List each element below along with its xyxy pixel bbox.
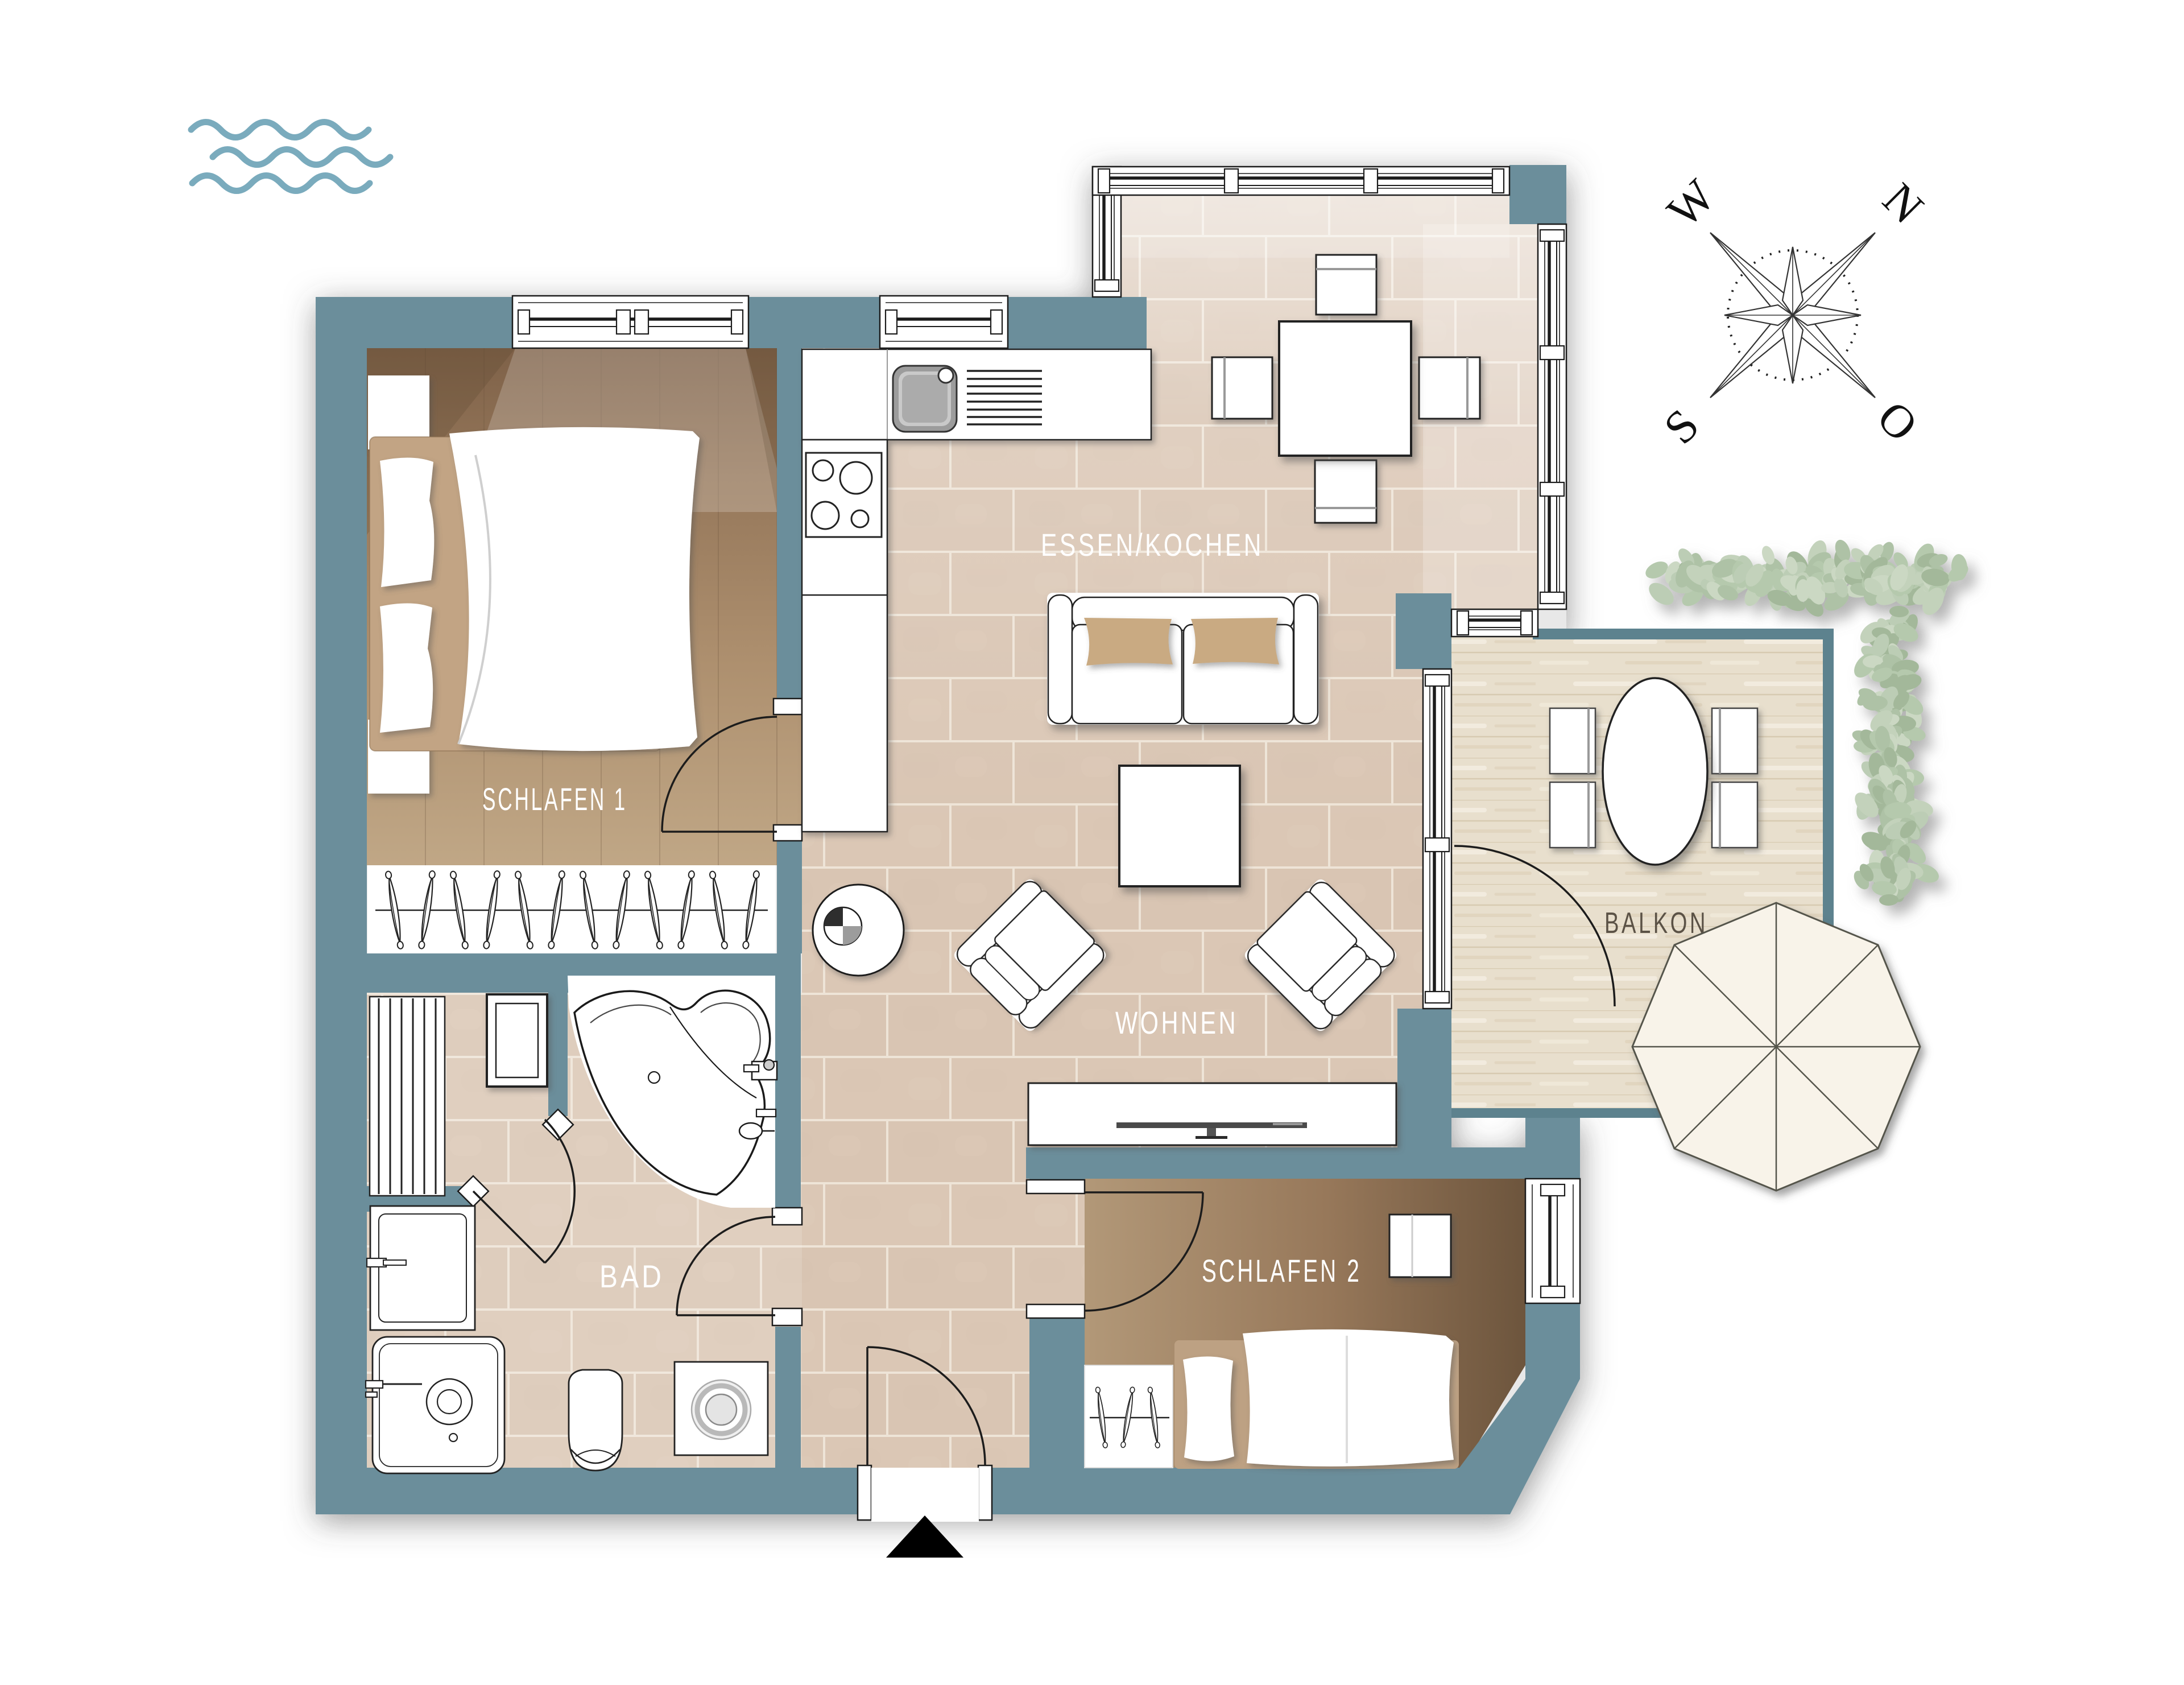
svg-text:SCHLAFEN 1: SCHLAFEN 1 [482, 781, 627, 817]
svg-text:WOHNEN: WOHNEN [1115, 1005, 1238, 1040]
svg-text:BAD: BAD [599, 1258, 664, 1294]
svg-text:BALKON: BALKON [1604, 907, 1708, 940]
svg-text:ESSEN/KOCHEN: ESSEN/KOCHEN [1041, 527, 1264, 563]
svg-text:SCHLAFEN 2: SCHLAFEN 2 [1202, 1253, 1362, 1288]
